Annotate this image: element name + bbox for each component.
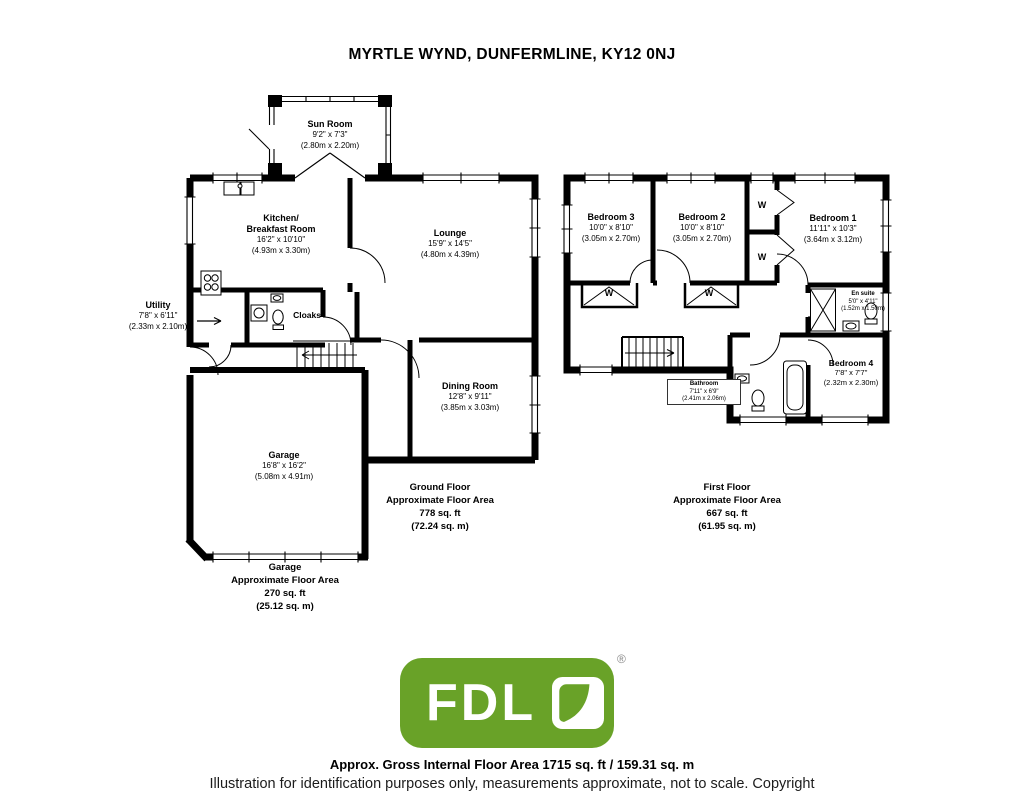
fdl-logo: FDL bbox=[400, 658, 614, 748]
room-dims-ft: 15'9" x 14'5" bbox=[385, 239, 515, 250]
room-dims-m: (3.05m x 2.70m) bbox=[568, 234, 654, 245]
room-name: En suite bbox=[826, 291, 900, 299]
room-dims-m: (5.08m x 4.91m) bbox=[224, 472, 344, 483]
room-dims-m: (3.64m x 3.12m) bbox=[775, 235, 891, 246]
room-dims-ft: 7'8" x 7'7" bbox=[812, 368, 890, 378]
wardrobe-label-bed2: W bbox=[700, 287, 718, 299]
room-name: Cloaks bbox=[277, 310, 337, 321]
room-name: Lounge bbox=[385, 228, 515, 239]
wardrobe-label-bed3: W bbox=[600, 287, 618, 299]
room-dims-m: (2.80m x 2.20m) bbox=[270, 141, 390, 152]
floorplan-page: MYRTLE WYND, DUNFERMLINE, KY12 0NJ bbox=[0, 0, 1024, 804]
room-dims-ft: 12'8" x 9'11" bbox=[410, 392, 530, 403]
area-line: Ground Floor bbox=[360, 481, 520, 494]
lounge-label: Lounge 15'9" x 14'5" (4.80m x 4.39m) bbox=[385, 228, 515, 260]
fdl-logo-text: FDL bbox=[426, 658, 536, 748]
bedroom-2-label: Bedroom 2 10'0" x 8'10" (3.05m x 2.70m) bbox=[655, 212, 749, 244]
area-line: 778 sq. ft bbox=[360, 507, 520, 520]
room-dims-m: (3.85m x 3.03m) bbox=[410, 403, 530, 414]
room-dims-ft: 11'11" x 10'3" bbox=[775, 224, 891, 235]
first-floor-area-label: First Floor Approximate Floor Area 667 s… bbox=[647, 481, 807, 533]
page-title: MYRTLE WYND, DUNFERMLINE, KY12 0NJ bbox=[0, 46, 1024, 64]
area-line: Approximate Floor Area bbox=[647, 494, 807, 507]
room-dims-m: (2.41m x 2.06m) bbox=[670, 396, 738, 403]
room-name: Bedroom 4 bbox=[812, 358, 890, 368]
garage-area-label: Garage Approximate Floor Area 270 sq. ft… bbox=[205, 561, 365, 613]
registered-trademark: ® bbox=[617, 652, 626, 666]
room-name: Sun Room bbox=[270, 119, 390, 130]
room-dims-m: (2.33m x 2.10m) bbox=[114, 322, 202, 333]
room-name: Breakfast Room bbox=[216, 224, 346, 235]
area-line: (72.24 sq. m) bbox=[360, 520, 520, 533]
area-line: Approximate Floor Area bbox=[360, 494, 520, 507]
footer-disclaimer: Illustration for identification purposes… bbox=[0, 776, 1024, 792]
area-line: First Floor bbox=[647, 481, 807, 494]
bedroom-4-label: Bedroom 4 7'8" x 7'7" (2.32m x 2.30m) bbox=[812, 358, 890, 387]
room-dims-m: (4.93m x 3.30m) bbox=[216, 246, 346, 257]
garage-label: Garage 16'8" x 16'2" (5.08m x 4.91m) bbox=[224, 450, 344, 482]
bathroom-label: Bathroom 7'11" x 6'9" (2.41m x 2.06m) bbox=[667, 379, 741, 405]
first-stairs bbox=[622, 337, 683, 370]
room-dims-ft: 16'8" x 16'2" bbox=[224, 461, 344, 472]
room-name: Bedroom 3 bbox=[568, 212, 654, 223]
room-dims-ft: 10'0" x 8'10" bbox=[568, 223, 654, 234]
room-dims-ft: 7'8" x 6'11" bbox=[114, 311, 202, 322]
area-line: 667 sq. ft bbox=[647, 507, 807, 520]
wardrobe-label-closet-bottom: W bbox=[753, 251, 771, 263]
room-dims-ft: 5'0" x 4'11" bbox=[826, 299, 900, 306]
ground-floor-area-label: Ground Floor Approximate Floor Area 778 … bbox=[360, 481, 520, 533]
dining-room-label: Dining Room 12'8" x 9'11" (3.85m x 3.03m… bbox=[410, 381, 530, 413]
room-dims-m: (4.80m x 4.39m) bbox=[385, 250, 515, 261]
bedroom-3-label: Bedroom 3 10'0" x 8'10" (3.05m x 2.70m) bbox=[568, 212, 654, 244]
wardrobe-label-closet-top: W bbox=[753, 199, 771, 211]
room-dims-m: (2.32m x 2.30m) bbox=[812, 378, 890, 388]
area-line: 270 sq. ft bbox=[205, 587, 365, 600]
room-dims-ft: 9'2" x 7'3" bbox=[270, 130, 390, 141]
area-line: (25.12 sq. m) bbox=[205, 600, 365, 613]
room-name: Bedroom 1 bbox=[775, 213, 891, 224]
room-name: Bathroom bbox=[670, 381, 738, 389]
room-name: Garage bbox=[224, 450, 344, 461]
room-dims-ft: 7'11" x 6'9" bbox=[670, 389, 738, 396]
area-line: Garage bbox=[205, 561, 365, 574]
utility-label: Utility 7'8" x 6'11" (2.33m x 2.10m) bbox=[114, 300, 202, 332]
room-name: Dining Room bbox=[410, 381, 530, 392]
footer-floor-area-total: Approx. Gross Internal Floor Area 1715 s… bbox=[0, 757, 1024, 772]
cloaks-label: Cloaks bbox=[277, 310, 337, 321]
room-dims-ft: 16'2" x 10'10" bbox=[216, 235, 346, 246]
fdl-leaf-icon bbox=[552, 677, 604, 729]
room-name: Kitchen/ bbox=[216, 213, 346, 224]
room-dims-m: (3.05m x 2.70m) bbox=[655, 234, 749, 245]
sun-room-label: Sun Room 9'2" x 7'3" (2.80m x 2.20m) bbox=[270, 119, 390, 151]
area-line: (61.95 sq. m) bbox=[647, 520, 807, 533]
bedroom-1-label: Bedroom 1 11'11" x 10'3" (3.64m x 3.12m) bbox=[775, 213, 891, 245]
room-name: Utility bbox=[114, 300, 202, 311]
kitchen-label: Kitchen/ Breakfast Room 16'2" x 10'10" (… bbox=[216, 213, 346, 256]
en-suite-label: En suite 5'0" x 4'11" (1.52m x 1.50m) bbox=[826, 291, 900, 313]
area-line: Approximate Floor Area bbox=[205, 574, 365, 587]
room-dims-m: (1.52m x 1.50m) bbox=[826, 306, 900, 313]
room-name: Bedroom 2 bbox=[655, 212, 749, 223]
room-dims-ft: 10'0" x 8'10" bbox=[655, 223, 749, 234]
